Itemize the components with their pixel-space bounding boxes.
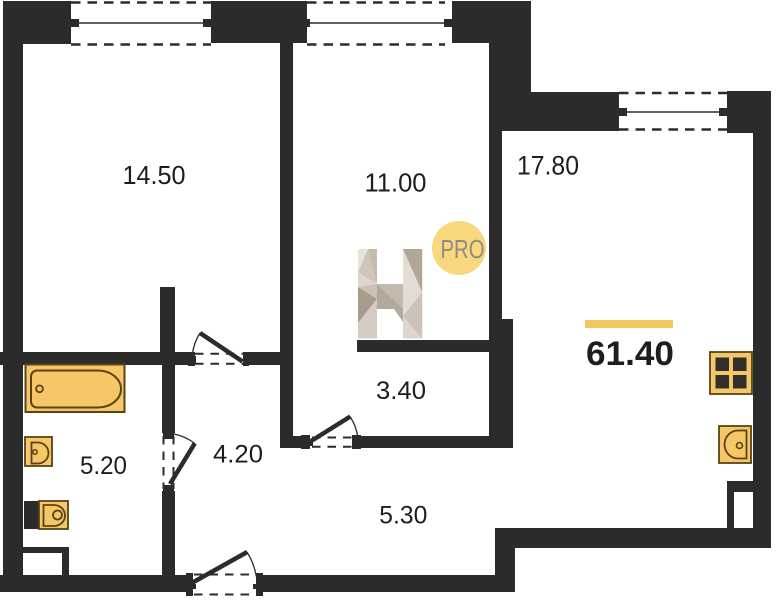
svg-text:4.20: 4.20 bbox=[213, 440, 263, 468]
svg-text:61.40: 61.40 bbox=[586, 335, 674, 373]
svg-text:11.00: 11.00 bbox=[365, 168, 427, 198]
svg-text:PRO: PRO bbox=[441, 234, 485, 264]
svg-text:3.40: 3.40 bbox=[376, 377, 426, 405]
svg-text:14.50: 14.50 bbox=[123, 160, 186, 190]
svg-text:5.30: 5.30 bbox=[379, 502, 427, 530]
svg-text:17.80: 17.80 bbox=[517, 150, 579, 180]
svg-text:5.20: 5.20 bbox=[80, 452, 127, 480]
